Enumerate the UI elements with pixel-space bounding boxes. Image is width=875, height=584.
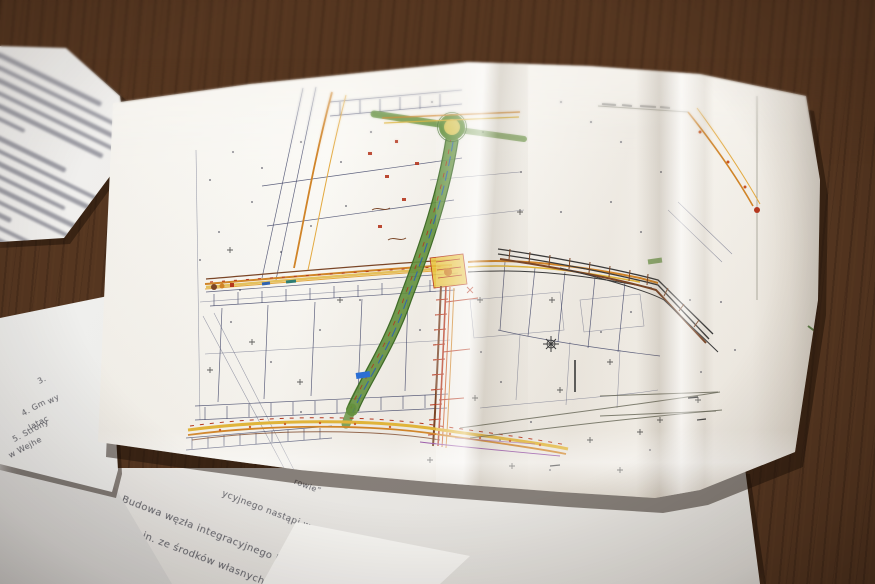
list-fragment: 3. xyxy=(36,374,48,386)
road-junction xyxy=(430,254,473,293)
bottom-road-band xyxy=(188,392,722,456)
list-fragment: wy xyxy=(46,392,61,406)
map-frame-lines xyxy=(598,96,757,416)
roundabout xyxy=(438,113,467,142)
cross-grid-marks xyxy=(207,209,701,473)
survey-point-dots xyxy=(199,101,736,471)
red-utility-corridor xyxy=(428,286,478,448)
compass-symbol xyxy=(543,336,559,352)
desk-photo: rowie” ycyjnego nastąpi w Budowa węzła i… xyxy=(0,0,875,584)
right-panel-utilities xyxy=(688,108,816,332)
